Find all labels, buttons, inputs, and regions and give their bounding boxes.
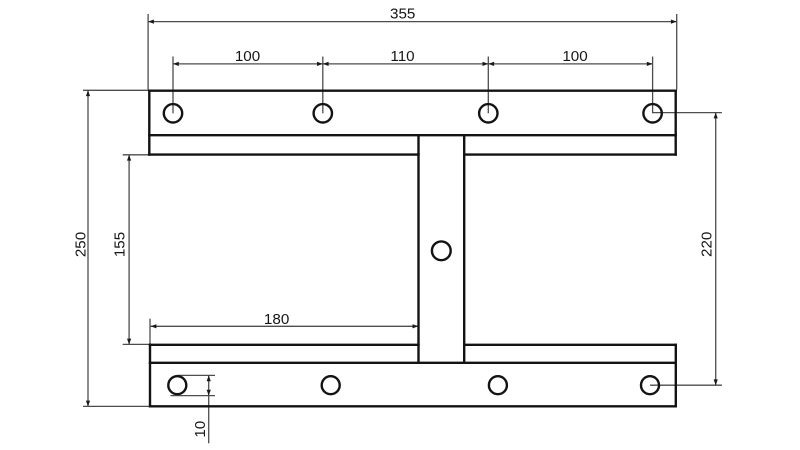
svg-text:110: 110 — [390, 48, 414, 65]
svg-text:355: 355 — [390, 6, 415, 23]
svg-text:155: 155 — [112, 232, 129, 257]
svg-text:180: 180 — [264, 311, 289, 328]
svg-text:250: 250 — [73, 232, 90, 257]
svg-text:100: 100 — [235, 48, 260, 65]
svg-text:100: 100 — [562, 48, 587, 65]
svg-text:220: 220 — [698, 232, 715, 257]
svg-text:10: 10 — [192, 421, 209, 438]
